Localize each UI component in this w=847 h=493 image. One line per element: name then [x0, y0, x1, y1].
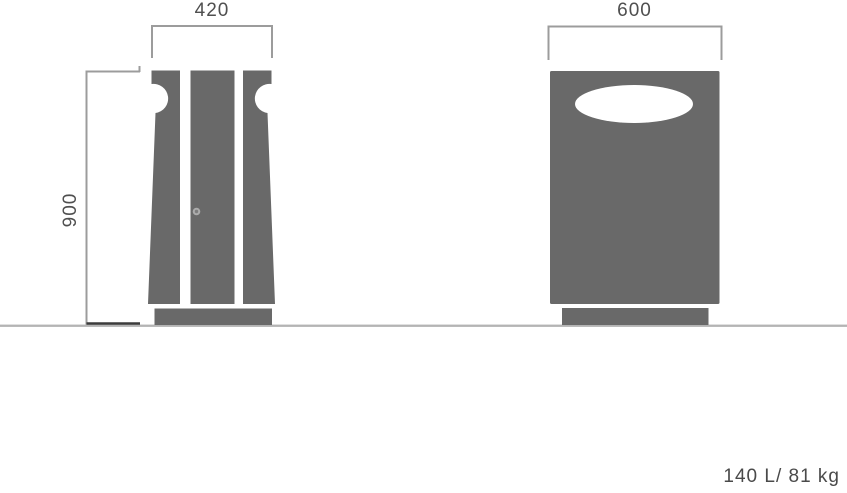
technical-drawing: [0, 0, 847, 493]
spec-capacity-weight: 140 L/ 81 kg: [723, 466, 840, 488]
side-width-dimension-bracket: [152, 26, 272, 58]
lock-icon-center: [195, 210, 198, 213]
ground-line: [0, 325, 847, 327]
height-dimension-bracket: [87, 72, 141, 325]
front-view-opening: [575, 85, 693, 123]
front-width-dimension-bracket: [549, 27, 722, 61]
side-view-middle-panel: [191, 71, 235, 305]
dimension-label-height: 900: [60, 180, 80, 240]
dimension-label-front-width: 600: [548, 0, 721, 22]
front-view-base: [562, 308, 709, 325]
drawing-canvas: 420 600 900 140 L/ 81 kg: [0, 0, 847, 493]
side-view-left-panel: [148, 71, 180, 305]
side-view-right-panel: [243, 71, 275, 305]
side-view: [148, 71, 275, 326]
side-view-base: [155, 309, 273, 326]
front-view: [550, 71, 720, 325]
dimension-label-side-width: 420: [152, 0, 272, 22]
